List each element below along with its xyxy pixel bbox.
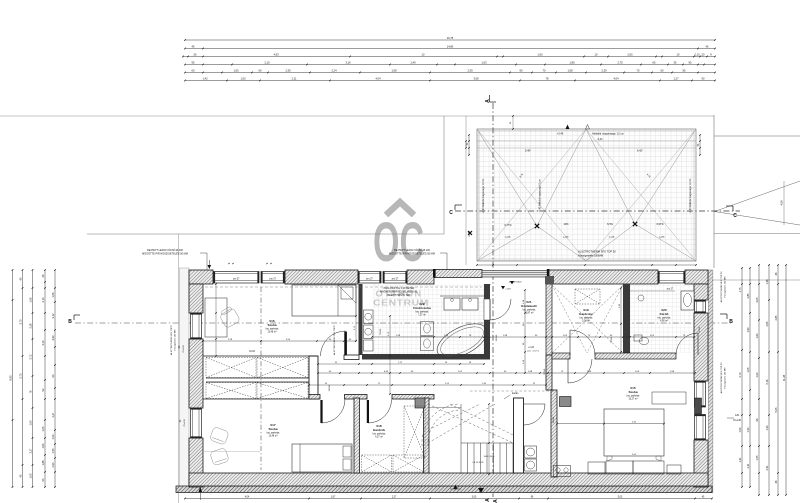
- svg-text:1,63: 1,63: [755, 333, 759, 339]
- svg-text:Gardrobe: Gardrobe: [579, 312, 593, 316]
- svg-text:1,63: 1,63: [481, 61, 487, 65]
- svg-text:C: C: [449, 210, 453, 216]
- svg-text:+1,23: +1,23: [528, 347, 535, 349]
- svg-text:1,27: 1,27: [673, 77, 679, 81]
- svg-text:B: B: [68, 319, 72, 325]
- svg-text:3,08: 3,08: [473, 77, 479, 81]
- svg-text:ALSZTROTHERM XPS TOP P: ALSZTROTHERM XPS TOP P: [333, 325, 336, 355]
- svg-text:+3,46: +3,46: [557, 132, 564, 136]
- svg-text:14,80: 14,80: [447, 45, 454, 49]
- svg-text:15,27 m²: 15,27 m²: [628, 398, 637, 401]
- svg-text:Közlekedő: Közlekedő: [521, 304, 537, 308]
- svg-text:13,48 m²: 13,48 m²: [267, 331, 276, 334]
- svg-text:1,06: 1,06: [51, 292, 55, 298]
- svg-text:3,05: 3,05: [755, 297, 759, 303]
- svg-text:1,53: 1,53: [738, 427, 742, 433]
- svg-text:5,18 m²: 5,18 m²: [582, 320, 590, 323]
- svg-text:4,27 m²: 4,27 m²: [375, 436, 383, 439]
- svg-text:75/240: 75/240: [699, 326, 701, 333]
- svg-text:6,77%: 6,77%: [504, 224, 512, 227]
- svg-text:70+130: 70+130: [183, 345, 185, 353]
- svg-text:1,60: 1,60: [537, 53, 543, 57]
- svg-text:Hőszigetelés 100 MM: Hőszigetelés 100 MM: [174, 329, 177, 350]
- svg-text:2,11: 2,11: [292, 77, 297, 81]
- svg-text:2,75: 2,75: [617, 61, 623, 65]
- svg-text:5,49°: 5,49°: [525, 149, 531, 153]
- svg-text:6,5%: 6,5%: [607, 223, 613, 226]
- svg-text:3,70: 3,70: [19, 319, 23, 325]
- svg-text:2,10: 2,10: [264, 61, 270, 65]
- svg-text:2,90: 2,90: [51, 462, 55, 468]
- svg-text:5,16: 5,16: [765, 379, 769, 385]
- svg-text:Szoba: Szoba: [268, 427, 277, 431]
- svg-text:2,85: 2,85: [774, 315, 778, 321]
- svg-text:pm 27: pm 27: [270, 279, 277, 281]
- svg-text:1,05: 1,05: [746, 367, 750, 373]
- svg-text:70+130: 70+130: [733, 419, 742, 422]
- svg-text:6,42°: 6,42°: [637, 149, 643, 153]
- svg-text:±0,00: ±0,00: [249, 351, 255, 353]
- svg-text:1,55: 1,55: [51, 448, 55, 454]
- svg-text:13,87 m²: 13,87 m²: [524, 312, 533, 315]
- svg-text:A: A: [485, 498, 491, 502]
- svg-text:szm : 2,57 m: szm : 2,57 m: [527, 351, 539, 353]
- svg-text:1,40: 1,40: [765, 425, 769, 431]
- svg-text:2,27: 2,27: [392, 497, 397, 499]
- svg-text:1,37¹: 1,37¹: [563, 236, 569, 239]
- svg-text:2,10: 2,10: [41, 297, 45, 303]
- svg-text:2,27: 2,27: [51, 412, 55, 418]
- svg-text:1,03: 1,03: [29, 473, 33, 479]
- svg-text:1,06: 1,06: [29, 297, 33, 303]
- svg-text:8,93: 8,93: [9, 375, 13, 381]
- svg-text:2,41: 2,41: [746, 463, 750, 469]
- svg-text:2,39: 2,39: [467, 69, 473, 73]
- svg-text:1,40: 1,40: [410, 61, 416, 65]
- svg-text:1,41: 1,41: [738, 457, 742, 463]
- svg-text:Szoba: Szoba: [267, 323, 276, 327]
- svg-text:3,72: 3,72: [29, 354, 33, 360]
- svg-text:1,75: 1,75: [738, 287, 742, 293]
- svg-text:OC: OC: [373, 210, 424, 273]
- svg-text:1,00: 1,00: [240, 77, 246, 81]
- svg-text:1,63: 1,63: [746, 327, 750, 333]
- svg-text:6,43: 6,43: [598, 138, 603, 141]
- svg-text:Attikafal magassaga: 12 cm: Attikafal magassaga: 12 cm: [592, 132, 624, 136]
- svg-text:16×17,8/25: 16×17,8/25: [483, 455, 495, 458]
- svg-text:bej. parketta: bej. parketta: [373, 433, 386, 436]
- svg-text:2,24: 2,24: [331, 69, 337, 73]
- svg-text:Fürdő: Fürdő: [660, 312, 669, 316]
- svg-text:A: A: [493, 499, 499, 503]
- svg-text:+3,43 Attikafal magassaga: 12: +3,43 Attikafal magassaga: 12 cm: [689, 179, 692, 214]
- svg-text:7,57 m²: 7,57 m²: [418, 314, 426, 317]
- svg-text:LE 15 FOK: LE 15 FOK: [473, 462, 484, 464]
- svg-text:2,10: 2,10: [694, 53, 700, 57]
- svg-text:kazán: kazán: [512, 392, 519, 395]
- svg-text:1,37¹: 1,37¹: [505, 236, 511, 239]
- svg-text:4,04: 4,04: [375, 77, 381, 81]
- svg-text:+3,43 Attikafal magassaga: 12: +3,43 Attikafal magassaga: 12 cm: [482, 179, 485, 214]
- svg-text:4,93: 4,93: [273, 53, 279, 57]
- svg-text:3,10: 3,10: [41, 340, 45, 346]
- svg-text:1,37¹: 1,37¹: [659, 236, 665, 239]
- svg-text:5,70: 5,70: [19, 373, 23, 379]
- svg-text:Hőszigetelés 150 MM: Hőszigetelés 150 MM: [724, 367, 727, 388]
- svg-text:1,03: 1,03: [755, 372, 759, 378]
- svg-text:90/240: 90/240: [496, 334, 498, 341]
- svg-text:5,05: 5,05: [618, 497, 623, 499]
- svg-text:2,05: 2,05: [627, 53, 633, 57]
- svg-text:bej. parketta: bej. parketta: [627, 395, 640, 398]
- svg-text:2,73: 2,73: [738, 372, 742, 378]
- svg-text:4,04: 4,04: [613, 77, 619, 81]
- svg-text:75/240: 75/240: [380, 328, 382, 335]
- svg-text:90/240: 90/240: [553, 416, 555, 423]
- svg-text:+3,43 Attikafal magassaga: 5 c: +3,43 Attikafal magassaga: 5 cm: [539, 179, 542, 212]
- svg-text:2,65: 2,65: [765, 321, 769, 327]
- svg-text:10%: 10%: [563, 223, 569, 226]
- svg-text:120: 120: [735, 414, 740, 417]
- svg-text:5,05: 5,05: [774, 407, 778, 413]
- svg-text:1,37¹: 1,37¹: [609, 236, 615, 239]
- svg-text:2,39: 2,39: [285, 69, 291, 73]
- svg-text:1,60: 1,60: [41, 443, 45, 449]
- svg-text:B: B: [729, 319, 733, 325]
- svg-text:70+130: 70+130: [184, 419, 186, 427]
- svg-text:ALSZTROTHERM SFS TOP 30: ALSZTROTHERM SFS TOP 30: [720, 271, 723, 303]
- svg-text:ALSZTROTHERM XPS TOP P: ALSZTROTHERM XPS TOP P: [170, 325, 173, 355]
- svg-text:bej. parketta: bej. parketta: [658, 317, 671, 320]
- svg-text:Hőszigetelés 180MM: Hőszigetelés 180MM: [578, 254, 604, 258]
- svg-text:pm 27: pm 27: [366, 279, 373, 281]
- svg-text:6,97%: 6,97%: [656, 223, 664, 226]
- svg-text:4,90 m²: 4,90 m²: [660, 320, 668, 323]
- svg-text:C: C: [733, 213, 737, 219]
- svg-text:BEÉPÍT HRNYÚ HAT: BEÉPÍT HRNYÚ HAT: [388, 294, 411, 297]
- svg-text:bej. parketta: bej. parketta: [266, 328, 279, 331]
- svg-text:REJTETT LEFOLYÓCSŐ Ø 100: REJTETT LEFOLYÓCSŐ Ø 100: [147, 249, 183, 252]
- svg-text:3,16: 3,16: [345, 61, 351, 65]
- svg-text:2,41: 2,41: [765, 465, 769, 471]
- svg-text:Gardrób: Gardrób: [373, 428, 385, 432]
- svg-text:1,00: 1,00: [29, 420, 33, 426]
- svg-text:MÖGÖTTE PIR HŐSZIGETELÉS 50 MM: MÖGÖTTE PIR HŐSZIGETELÉS 50 MM: [142, 253, 188, 256]
- svg-text:Fürdőszoba: Fürdőszoba: [413, 306, 431, 310]
- svg-text:4,56: 4,56: [780, 200, 784, 206]
- svg-text:MAGAS BURKAT ELHELYEZNI AL.: MAGAS BURKAT ELHELYEZNI AL.: [380, 291, 418, 294]
- svg-text:bej. parketta: bej. parketta: [523, 309, 536, 312]
- svg-text:bej. parketta: bej. parketta: [580, 317, 593, 320]
- svg-text:1,05: 1,05: [233, 69, 239, 73]
- svg-text:PADLÓSÍKTÓL 1,20 MÉTER: PADLÓSÍKTÓL 1,20 MÉTER: [384, 287, 415, 290]
- svg-text:90/240: 90/240: [329, 384, 331, 391]
- svg-text:1,08: 1,08: [567, 69, 573, 73]
- svg-text:1,05: 1,05: [41, 426, 45, 432]
- svg-text:75/240: 75/240: [544, 368, 546, 375]
- svg-text:ALSZTROTHERM SFS TOP 30: ALSZTROTHERM SFS TOP 30: [578, 250, 616, 254]
- svg-text:11,28: 11,28: [782, 374, 786, 381]
- svg-text:1,42: 1,42: [202, 77, 208, 81]
- svg-text:ALSZTROTHERM SFS TOP 30: ALSZTROTHERM SFS TOP 30: [720, 362, 723, 394]
- svg-text:1,88: 1,88: [41, 460, 45, 466]
- svg-text:REJTETT LEFOLYÓCSŐ Ø 100: REJTETT LEFOLYÓCSŐ Ø 100: [394, 249, 430, 252]
- svg-text:1,30: 1,30: [746, 427, 750, 433]
- svg-text:1,08: 1,08: [391, 69, 397, 73]
- svg-text:MÖGÖTTE PIR HŐSZIGETELÉS 50 MM: MÖGÖTTE PIR HŐSZIGETELÉS 50 MM: [389, 253, 435, 256]
- svg-text:pm 27: pm 27: [233, 279, 240, 281]
- svg-text:2,39: 2,39: [601, 69, 607, 73]
- svg-text:bej. parketta: bej. parketta: [267, 432, 280, 435]
- svg-text:1,48: 1,48: [765, 279, 769, 285]
- svg-text:Szoba: Szoba: [628, 390, 637, 394]
- svg-text:2,28: 2,28: [29, 323, 33, 329]
- svg-text:bej. parketta: bej. parketta: [416, 311, 429, 314]
- svg-text:1,50: 1,50: [51, 434, 55, 440]
- svg-text:1,55: 1,55: [755, 455, 759, 461]
- svg-text:13,48 m²: 13,48 m²: [268, 435, 277, 438]
- svg-text:16,75: 16,75: [447, 36, 454, 40]
- svg-text:pm 27: pm 27: [392, 279, 399, 281]
- svg-text:3,27: 3,27: [29, 448, 33, 454]
- svg-text:2,85: 2,85: [746, 293, 750, 299]
- svg-text:4,93: 4,93: [51, 335, 55, 341]
- svg-text:Hőszigetelés 150 MM: Hőszigetelés 150 MM: [724, 276, 727, 297]
- svg-text:3,05: 3,05: [472, 497, 477, 499]
- svg-text:4,04: 4,04: [245, 497, 250, 499]
- svg-text:1,87: 1,87: [331, 497, 336, 499]
- svg-text:+3,87: +3,87: [505, 289, 511, 291]
- svg-text:1,85: 1,85: [569, 61, 575, 65]
- svg-text:3,12: 3,12: [51, 313, 55, 319]
- svg-text:75/240: 75/240: [611, 336, 613, 343]
